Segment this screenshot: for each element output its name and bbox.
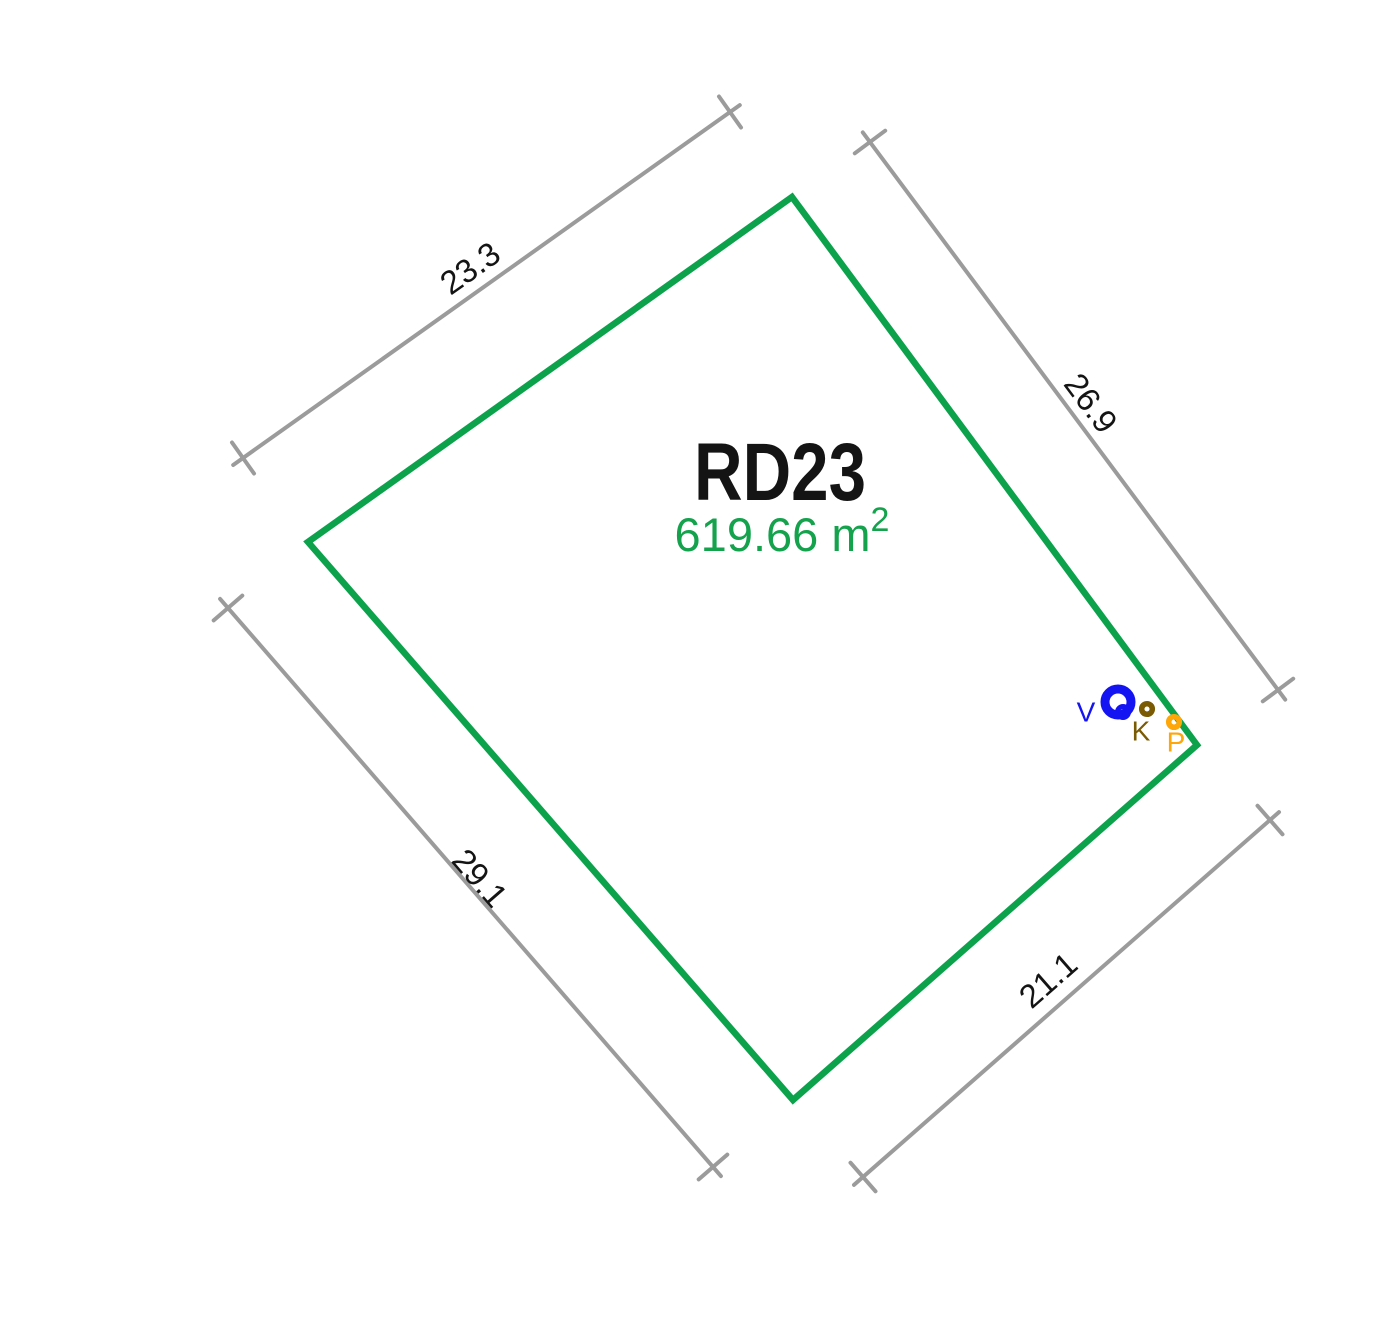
dimension-label-bottom-right: 21.1 xyxy=(1012,945,1085,1015)
dimension-label-bottom-left: 29.1 xyxy=(445,842,515,915)
dimension-tick xyxy=(719,97,741,128)
area-superscript: 2 xyxy=(871,501,890,539)
parcel-id-label: RD23 xyxy=(694,427,866,518)
dimension-line xyxy=(863,132,1285,699)
dimension-lines xyxy=(214,97,1294,1192)
marker-k-symbol[interactable] xyxy=(1142,704,1153,715)
cadastral-plan-canvas: RD23 619.66 m2 23.3 26.9 29.1 21.1 V K P xyxy=(0,0,1380,1320)
marker-p-label: P xyxy=(1167,727,1186,758)
cadastral-drawing: RD23 619.66 m2 23.3 26.9 29.1 21.1 V K P xyxy=(0,0,1380,1320)
dimension-tick xyxy=(1263,679,1293,702)
dimension-line-top-right xyxy=(855,131,1293,702)
dimension-label-top-right: 26.9 xyxy=(1057,366,1125,440)
marker-v-symbol[interactable] xyxy=(1105,689,1131,718)
marker-k-label: K xyxy=(1132,716,1151,747)
dimension-tick xyxy=(232,443,254,474)
area-value: 619.66 m xyxy=(675,508,871,561)
dimension-tick xyxy=(855,131,885,154)
dimension-line xyxy=(854,812,1279,1185)
parcel-area-label: 619.66 m2 xyxy=(675,501,890,561)
marker-v-label: V xyxy=(1077,697,1096,728)
dimension-label-top-left: 23.3 xyxy=(433,234,507,301)
